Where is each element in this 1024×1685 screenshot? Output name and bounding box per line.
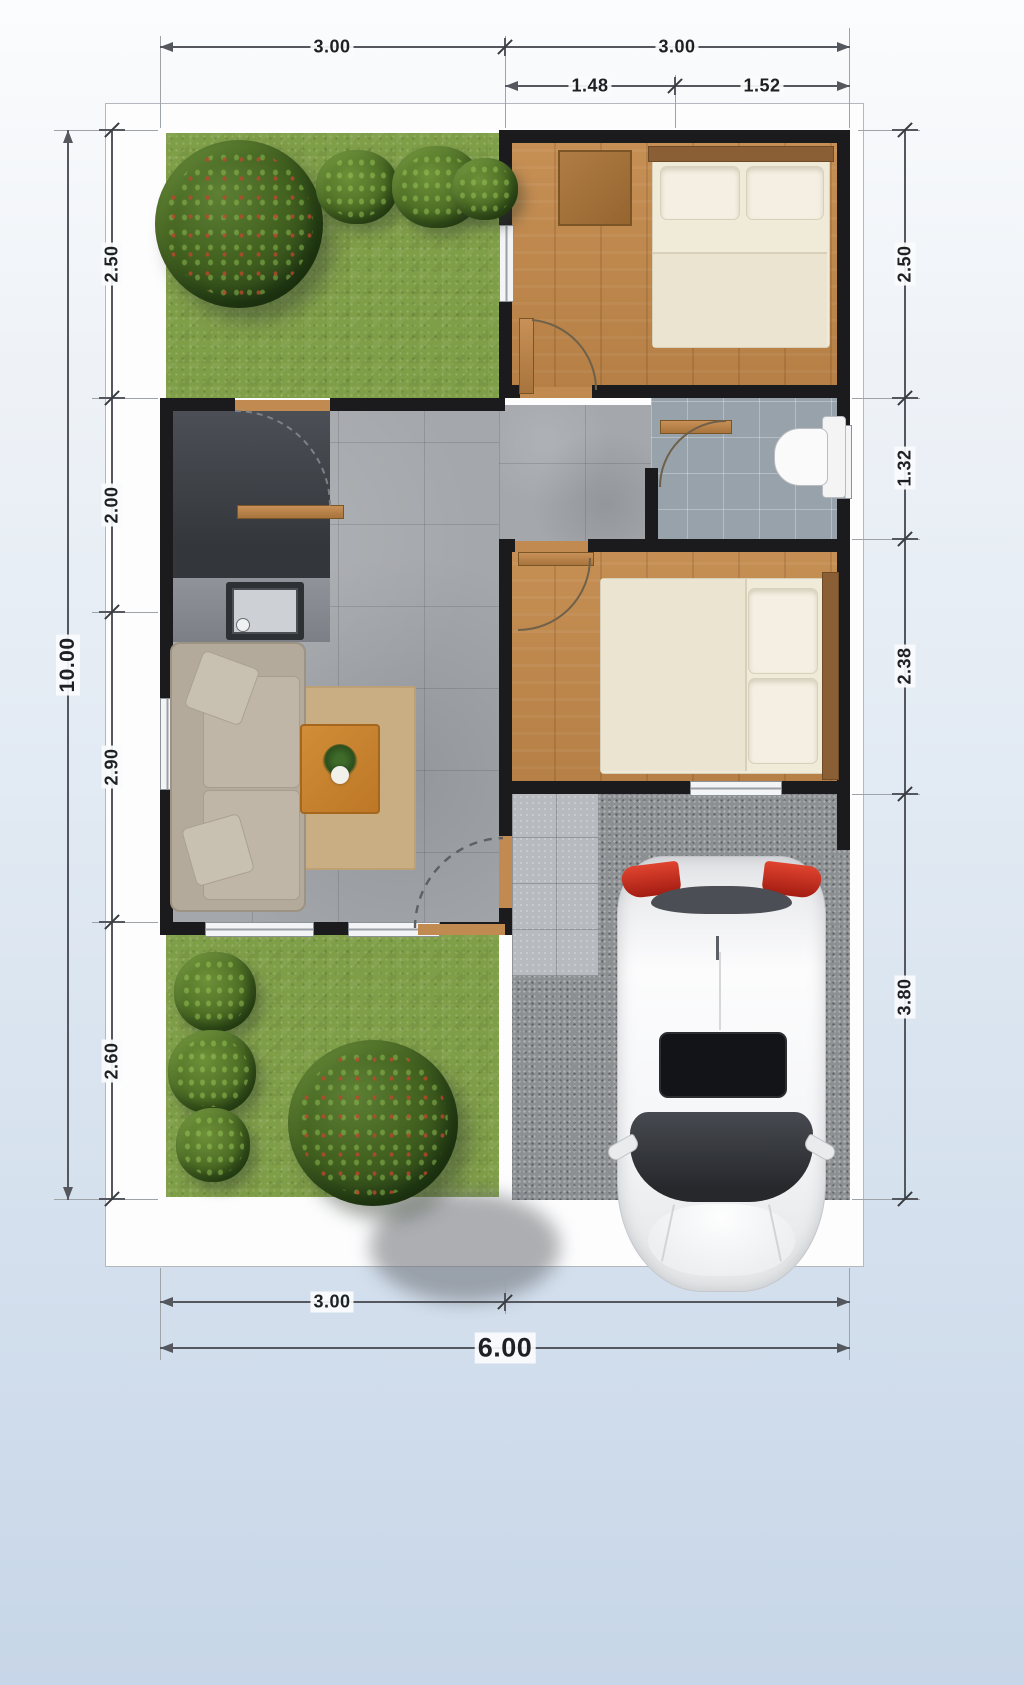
main-door-arc	[415, 838, 503, 928]
bedroom2-door-arc	[518, 558, 590, 630]
garden-door-arc	[235, 411, 330, 506]
car-windshield	[630, 1112, 813, 1202]
door-swing-arcs	[0, 0, 1024, 1685]
car-sunroof	[659, 1032, 787, 1098]
car-rear-window	[651, 886, 792, 914]
car-roof-line	[719, 952, 721, 1030]
bathroom-door-arc	[660, 421, 726, 487]
car	[615, 852, 828, 1292]
bedroom1-door-arc	[532, 320, 596, 390]
